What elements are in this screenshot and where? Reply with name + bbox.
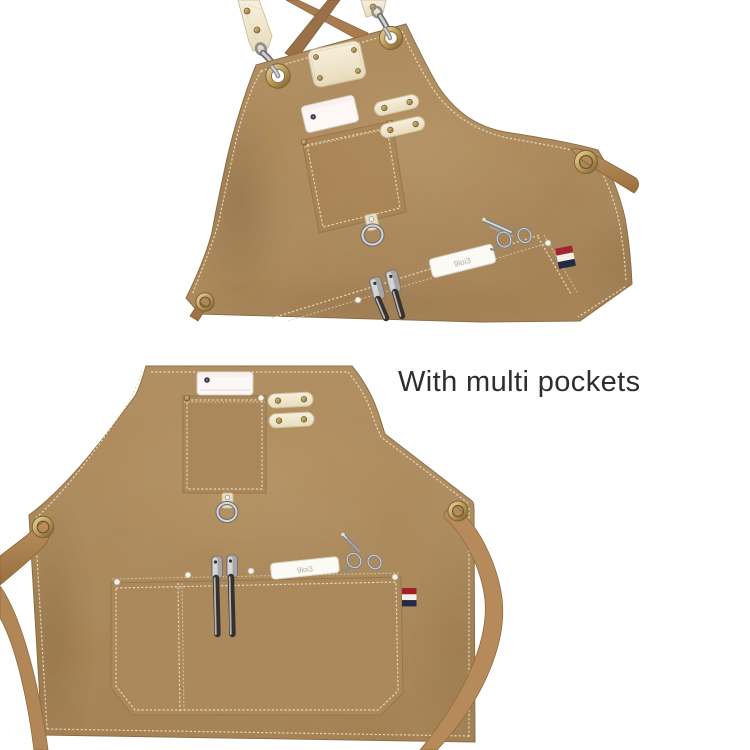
- svg-text:With multi pockets: With multi pockets: [398, 366, 641, 398]
- svg-text:9loi3: 9loi3: [297, 564, 314, 575]
